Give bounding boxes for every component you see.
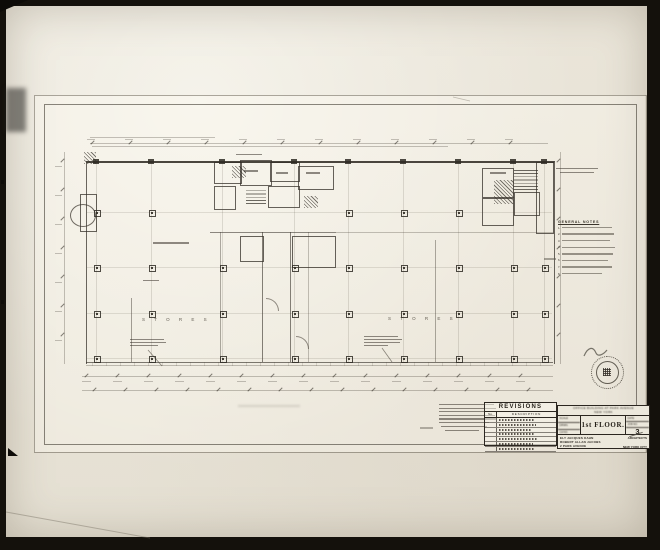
photograph-of-floor-plan: S T O R E S S T O R E S GENERAL NOTES 1.… <box>0 0 660 550</box>
dimension-text-smudge <box>505 139 513 140</box>
note-leader-line <box>382 348 392 362</box>
dimension-text-smudge <box>201 139 209 140</box>
dimension-text-smudge <box>423 381 432 382</box>
grid-line-vertical <box>222 163 223 362</box>
dimension-text-smudge <box>163 139 171 140</box>
dimension-text-smudge <box>392 381 401 382</box>
top-dimension-line-2 <box>90 137 215 138</box>
storefront-mullion <box>316 362 317 366</box>
storefront-mullion <box>120 362 121 366</box>
storefront-mullion <box>344 362 345 366</box>
storefront-mullion <box>260 362 261 366</box>
dimension-text-smudge <box>454 381 463 382</box>
bottom-dimension-line-2 <box>82 390 553 391</box>
dimension-text-smudge <box>516 381 525 382</box>
dimension-text-smudge <box>485 381 494 382</box>
storefront-mullion <box>134 362 135 366</box>
dimension-text-smudge <box>55 311 62 312</box>
grid-line-vertical <box>513 163 514 362</box>
dimension-text-smudge <box>277 139 285 140</box>
wall-column <box>400 159 406 164</box>
dimension-text-smudge <box>82 381 91 382</box>
storefront-mullion <box>330 362 331 366</box>
storefront-mullion <box>358 362 359 366</box>
dimension-text-smudge <box>268 381 277 382</box>
wall-column <box>541 159 547 164</box>
dimension-text-smudge <box>55 282 62 283</box>
storefront-mullion <box>274 362 275 366</box>
dimension-text-smudge <box>361 381 370 382</box>
storefront-mullion <box>512 362 513 366</box>
wall-column <box>148 159 154 164</box>
storefront-mullion <box>442 362 443 366</box>
dimension-text-smudge <box>206 381 215 382</box>
dimension-text-smudge <box>237 381 246 382</box>
dimension-text-smudge <box>299 381 308 382</box>
storefront-mullion <box>106 362 107 366</box>
dimension-text-smudge <box>239 139 247 140</box>
wall-column <box>455 159 461 164</box>
storefront-mullion <box>484 362 485 366</box>
dimension-text-smudge <box>175 381 184 382</box>
grid-line-vertical <box>544 163 545 362</box>
wall-column <box>510 159 516 164</box>
grid-line-horizontal <box>87 358 552 359</box>
storefront-mullion <box>470 362 471 366</box>
storefront-mullion <box>218 362 219 366</box>
dimension-text-smudge <box>353 139 361 140</box>
storefront-mullion <box>428 362 429 366</box>
storefront-mullion <box>204 362 205 366</box>
storefront-mullion <box>386 362 387 366</box>
grid-line-vertical <box>458 163 459 362</box>
grid-line-horizontal <box>87 267 552 268</box>
dimension-text-smudge <box>429 139 437 140</box>
paper-crease <box>6 512 150 538</box>
storefront-mullion <box>302 362 303 366</box>
wall-column <box>93 159 99 164</box>
storefront-mullion <box>372 362 373 366</box>
storefront-mullion <box>526 362 527 366</box>
dimension-text-smudge <box>55 340 62 341</box>
faint-scratch <box>453 97 470 101</box>
dimension-text-smudge <box>113 381 122 382</box>
dimension-text-smudge <box>125 139 133 140</box>
storefront-mullion <box>414 362 415 366</box>
dimension-text-smudge <box>144 381 153 382</box>
grid-line-vertical <box>294 163 295 362</box>
wall-column <box>345 159 351 164</box>
dimension-text-smudge <box>55 195 62 196</box>
storefront-mullion <box>540 362 541 366</box>
pencil-squiggle <box>584 348 607 356</box>
storefront-mullion <box>246 362 247 366</box>
dimension-text-smudge <box>55 224 62 225</box>
storefront-mullion <box>190 362 191 366</box>
dimension-text-smudge <box>87 139 95 140</box>
grid-line-vertical <box>348 163 349 362</box>
storefront-mullion <box>288 362 289 366</box>
storefront-mullion <box>148 362 149 366</box>
dimension-text-smudge <box>330 381 339 382</box>
dimension-text-smudge <box>467 139 475 140</box>
storefront-mullion <box>400 362 401 366</box>
grid-line-vertical <box>151 163 152 362</box>
storefront-mullion <box>456 362 457 366</box>
dimension-text-smudge <box>391 139 399 140</box>
wall-column <box>291 159 297 164</box>
grid-line-vertical <box>403 163 404 362</box>
dimension-text-smudge <box>55 253 62 254</box>
pencil-marks-overlay <box>0 0 660 550</box>
grid-line-horizontal <box>87 212 552 213</box>
dimension-text-smudge <box>315 139 323 140</box>
storefront-mullion <box>92 362 93 366</box>
grid-line-horizontal <box>87 313 552 314</box>
grid-line-vertical <box>96 163 97 362</box>
bottom-dimension-line <box>82 376 553 377</box>
storefront-mullion <box>162 362 163 366</box>
storefront-mullion <box>498 362 499 366</box>
storefront-mullion <box>176 362 177 366</box>
wall-column <box>219 159 225 164</box>
storefront-mullion <box>232 362 233 366</box>
dimension-text-smudge <box>55 166 62 167</box>
